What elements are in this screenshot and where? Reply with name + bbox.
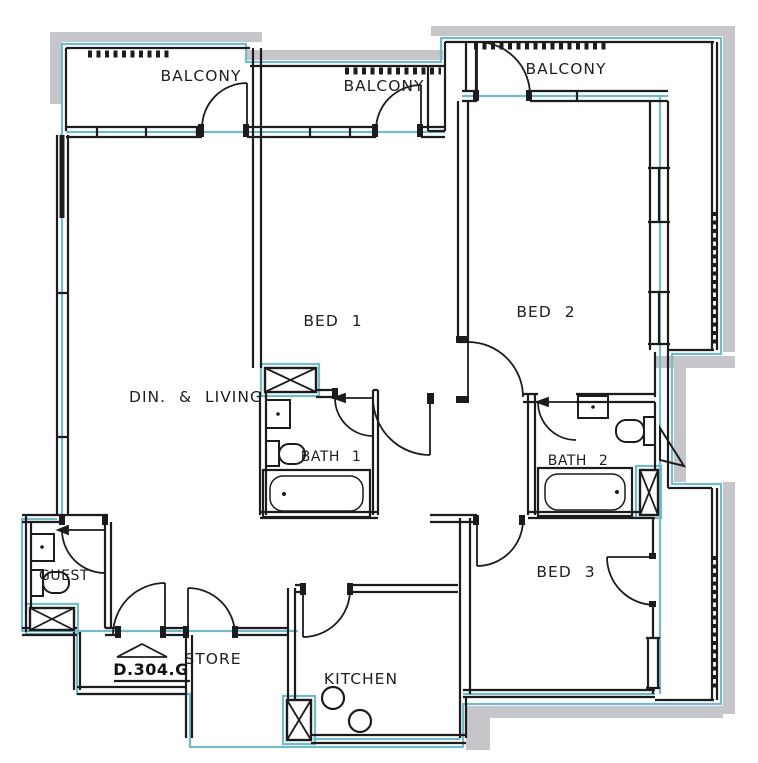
label-bath2: BATH 2 [548,453,609,469]
entrance-label: D.304.G [113,660,188,679]
door-store [188,588,235,635]
washbasin-guest-drain [40,545,44,549]
shaft-bath2 [640,470,658,515]
door-balcony3 [477,42,530,95]
label-bed1: BED 1 [303,312,362,330]
floor-plan-drawing: D.304.G BALCONY BALCONY BALCONY BED 1 BE… [0,0,758,763]
entrance-marker: D.304.G [113,644,190,681]
label-bed3: BED 3 [536,563,595,581]
shadow-bottom-step [466,706,490,750]
door-guest [62,530,105,573]
walls [22,42,717,743]
accent-exterior-trace [22,38,721,747]
bathtub-bath2-inner [545,474,625,510]
floor-plan: D.304.G BALCONY BALCONY BALCONY BED 1 BE… [0,0,758,763]
door-kitchen [303,590,350,637]
door-bed3-hall [477,520,523,566]
shadow-bottom-right [466,706,723,718]
label-store: STORE [184,650,241,668]
label-bath1: BATH 1 [301,449,362,465]
room-labels: BALCONY BALCONY BALCONY BED 1 BED 2 BED … [39,60,608,688]
label-bed2: BED 2 [516,303,575,321]
shaft-bath1 [265,368,316,392]
kitchen-sink-bowl-1 [322,687,344,709]
door-bed2 [468,342,523,397]
washbasin-bath2-drain [591,405,595,409]
entrance-roof-icon [117,644,167,657]
shaft-guest [30,608,74,630]
toilet-tank-bath2 [644,417,655,445]
label-guest: GUEST [39,568,89,584]
shadow-balcony2-top [246,50,443,60]
shadow-right-terrace [723,34,735,352]
door-bed3-balcony [607,557,655,605]
shaft-kitchen [287,700,311,740]
door-bath1 [335,398,373,436]
door-bed1 [373,398,430,455]
shadow-right-balcony-low [723,482,735,714]
label-kitchen: KITCHEN [324,670,398,688]
label-balcony1: BALCONY [161,67,242,85]
bathtub-bath2-drain [615,490,619,494]
kitchen-sink-bowl-2 [349,710,371,732]
label-balcony3: BALCONY [526,60,607,78]
accent-lines [22,38,721,747]
label-dining-living: DIN. & LIVING [129,388,263,406]
toilet-tank-bath1 [266,441,279,466]
shadow-balcony3-top [431,26,735,36]
door-jambs [59,90,656,638]
bathtub-bath1-drain [282,492,286,496]
toilet-bowl-bath2 [616,420,644,442]
door-bath2 [538,402,576,440]
wall-lines [22,42,717,743]
washbasin-bath1-drain [276,412,280,416]
label-balcony2: BALCONY [344,77,425,95]
balcony-railings [88,46,715,690]
door-balcony1 [202,83,247,128]
door-swing-arrow-guest [58,526,68,534]
